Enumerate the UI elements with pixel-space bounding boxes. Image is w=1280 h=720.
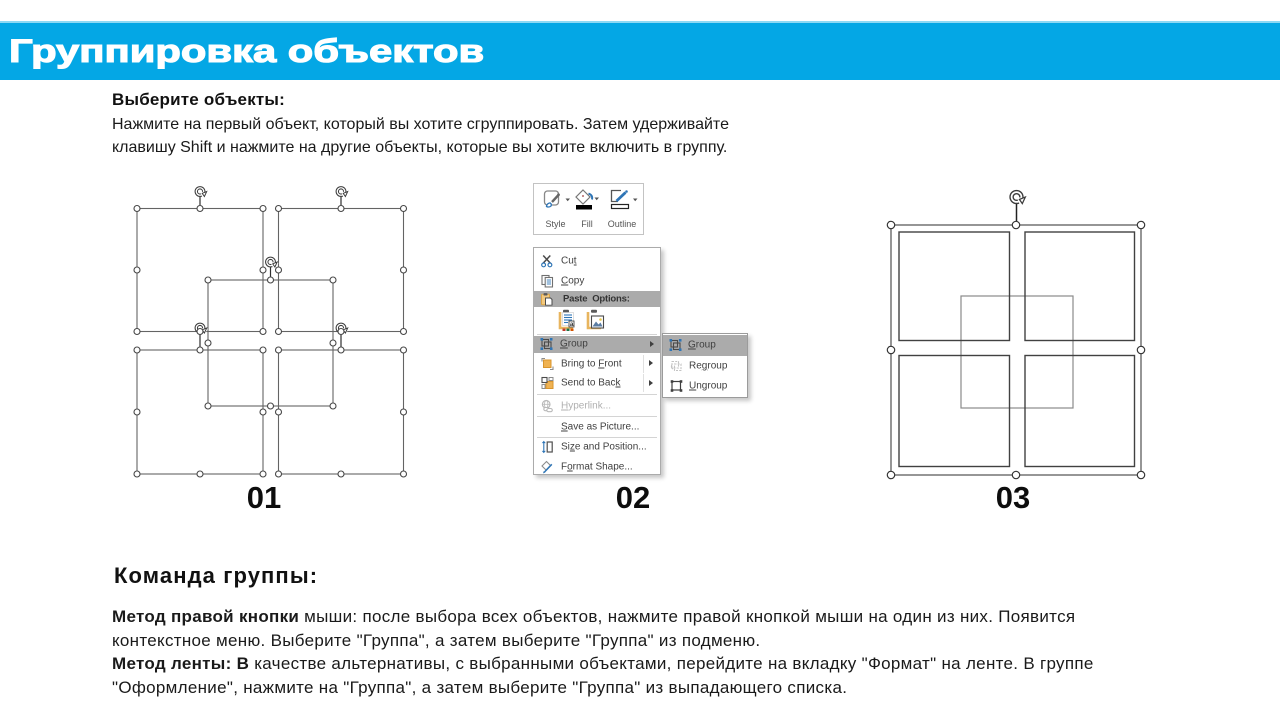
svg-text:a: a bbox=[570, 321, 574, 328]
